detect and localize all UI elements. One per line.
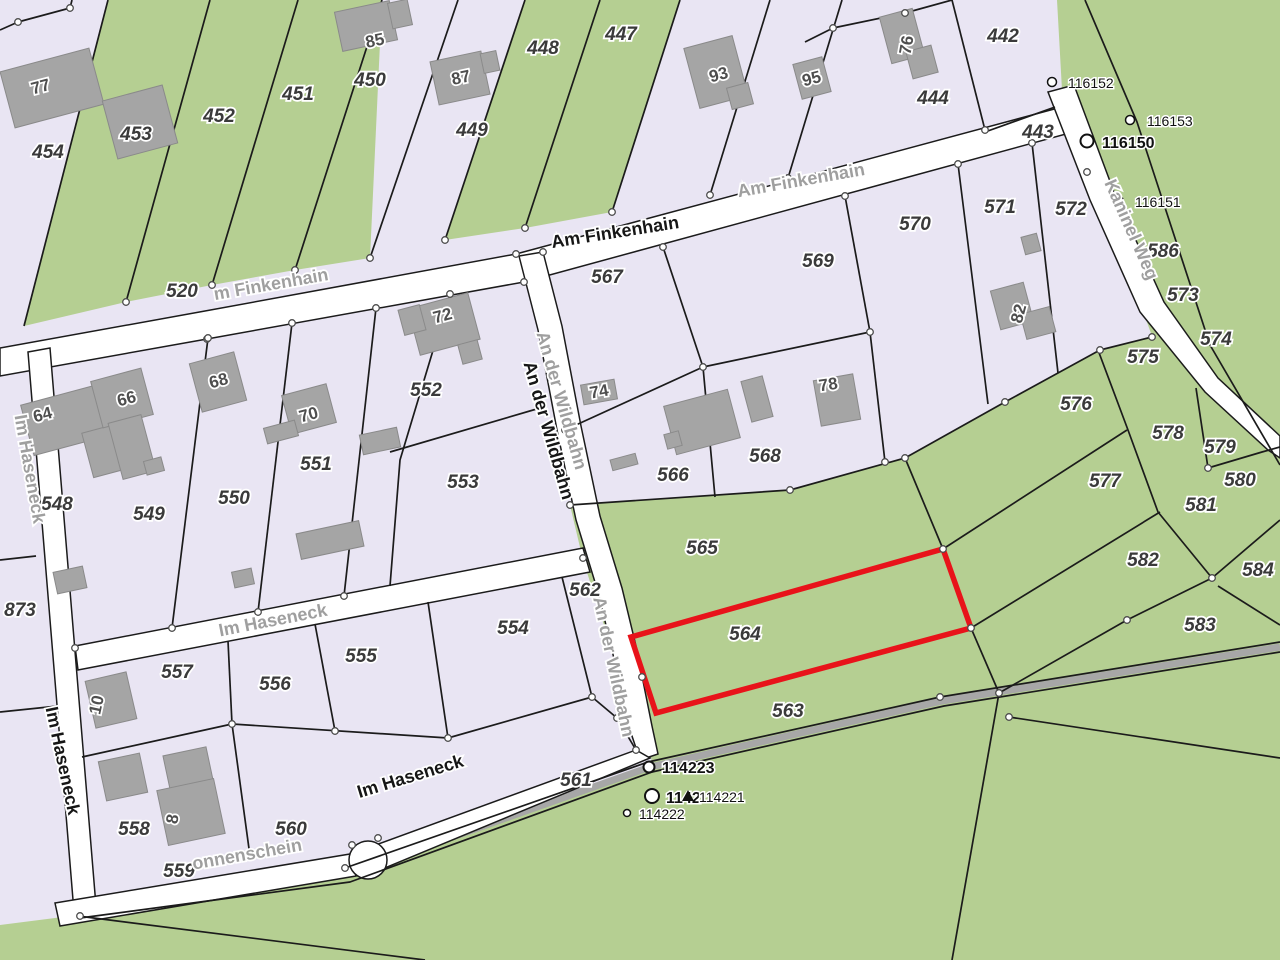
boundary-node	[332, 728, 339, 735]
parcel-number-447: 447	[604, 24, 638, 45]
boundary-node	[660, 244, 667, 251]
parcel-number-572: 572	[1055, 199, 1087, 220]
boundary-node	[589, 694, 596, 701]
survey-marker-label: 116152	[1068, 75, 1114, 91]
boundary-node	[940, 546, 947, 553]
boundary-node	[72, 645, 79, 652]
boundary-node	[633, 747, 640, 754]
building	[157, 779, 225, 846]
parcel-number-452: 452	[202, 106, 235, 127]
building	[458, 340, 482, 364]
boundary-node	[700, 364, 707, 371]
parcel-number-453: 453	[119, 124, 152, 145]
building	[480, 51, 500, 74]
parcel-number-569: 569	[802, 251, 834, 272]
parcel-number-557: 557	[161, 662, 194, 683]
survey-marker-label: 114223	[662, 760, 715, 777]
boundary-node	[77, 913, 84, 920]
parcel-number-581: 581	[1185, 495, 1217, 516]
survey-marker-label: 114221	[699, 789, 745, 805]
survey-marker-circle	[1081, 135, 1094, 148]
survey-marker-circle	[1126, 116, 1135, 125]
parcel-number-555: 555	[345, 646, 377, 667]
boundary-node	[123, 299, 130, 306]
parcel-number-552: 552	[410, 380, 442, 401]
parcel-number-551: 551	[300, 454, 332, 475]
parcel-number-558: 558	[118, 819, 150, 840]
boundary-node	[367, 255, 374, 262]
boundary-node	[567, 502, 574, 509]
parcel-number-448: 448	[526, 38, 559, 59]
boundary-node	[447, 291, 454, 298]
boundary-node	[882, 459, 889, 466]
boundary-node	[830, 25, 837, 32]
parcel-number-549: 549	[133, 504, 165, 525]
parcel-number-568: 568	[749, 446, 781, 467]
boundary-node	[67, 5, 74, 12]
survey-marker-label: 116153	[1147, 113, 1193, 129]
building-number-76: 76	[896, 34, 918, 56]
survey-marker-label: 116151	[1135, 194, 1181, 210]
parcel-number-451: 451	[281, 84, 314, 105]
boundary-node	[842, 193, 849, 200]
survey-marker-circle	[644, 762, 655, 773]
building-number-85: 85	[364, 29, 386, 52]
parcel-number-579: 579	[1204, 437, 1236, 458]
parcel-number-450: 450	[353, 70, 386, 91]
boundary-node	[580, 555, 587, 562]
parcel-number-520: 520	[166, 281, 198, 302]
building	[664, 431, 682, 449]
parcel-number-449: 449	[455, 120, 488, 141]
boundary-node	[1205, 465, 1212, 472]
parcel-number-443: 443	[1021, 122, 1054, 143]
parcel-number-550: 550	[218, 488, 250, 509]
parcel-number-575: 575	[1127, 347, 1159, 368]
boundary-node	[289, 320, 296, 327]
parcel-number-570: 570	[899, 214, 931, 235]
building-number-87: 87	[450, 66, 472, 89]
boundary-node	[445, 735, 452, 742]
boundary-node	[513, 251, 520, 258]
boundary-node	[968, 625, 975, 632]
building-number-78: 78	[818, 374, 839, 395]
building	[232, 568, 255, 588]
parcel-number-573: 573	[1167, 285, 1199, 306]
boundary-node	[639, 674, 646, 681]
boundary-node	[902, 10, 909, 17]
boundary-node	[169, 625, 176, 632]
parcel-number-580: 580	[1224, 470, 1256, 491]
survey-marker-label: 116150	[1102, 135, 1155, 152]
parcel-number-873: 873	[4, 600, 36, 621]
survey-marker-circle	[645, 789, 659, 803]
survey-marker-circle	[1048, 78, 1057, 87]
parcel-number-444: 444	[916, 88, 949, 109]
boundary-node	[205, 335, 212, 342]
parcel-number-554: 554	[497, 618, 529, 639]
parcel-number-559: 559	[163, 861, 195, 882]
parcel-number-556: 556	[259, 674, 291, 695]
boundary-node	[1002, 399, 1009, 406]
map-canvas[interactable]: 1161521161531161501161511142231142114221…	[0, 0, 1280, 960]
parcel-number-553: 553	[447, 472, 479, 493]
parcel-number-577: 577	[1089, 471, 1122, 492]
parcel-number-571: 571	[984, 197, 1016, 218]
parcel-number-565: 565	[686, 538, 718, 559]
boundary-node	[442, 237, 449, 244]
boundary-node	[1209, 575, 1216, 582]
parcel-number-566: 566	[657, 465, 689, 486]
boundary-node	[1097, 347, 1104, 354]
parcel-number-582: 582	[1127, 550, 1159, 571]
boundary-node	[1006, 714, 1013, 721]
boundary-node	[1084, 169, 1091, 176]
building-number-10: 10	[85, 694, 108, 716]
parcel-number-561: 561	[560, 770, 592, 791]
boundary-node	[522, 225, 529, 232]
parcel-number-583: 583	[1184, 615, 1216, 636]
parcel-number-442: 442	[986, 26, 1019, 47]
boundary-node	[373, 305, 380, 312]
cadastral-map[interactable]: 1161521161531161501161511142231142114221…	[0, 0, 1280, 960]
boundary-node	[609, 209, 616, 216]
boundary-node	[375, 835, 382, 842]
boundary-node	[15, 19, 22, 26]
parcel-number-584: 584	[1242, 560, 1274, 581]
boundary-node	[996, 690, 1003, 697]
building	[98, 753, 147, 801]
boundary-node	[902, 455, 909, 462]
boundary-node	[867, 329, 874, 336]
boundary-node	[1149, 334, 1156, 341]
boundary-node	[707, 192, 714, 199]
boundary-node	[1124, 617, 1131, 624]
survey-marker-circle	[624, 810, 631, 817]
boundary-node	[787, 487, 794, 494]
parcel-number-564: 564	[729, 624, 761, 645]
building-number-74: 74	[588, 380, 610, 402]
boundary-node	[937, 694, 944, 701]
boundary-node	[540, 249, 547, 256]
parcel-number-578: 578	[1152, 423, 1184, 444]
boundary-node	[982, 127, 989, 134]
survey-marker-label: 114222	[639, 806, 685, 822]
parcel-number-576: 576	[1060, 394, 1092, 415]
boundary-node	[229, 721, 236, 728]
boundary-node	[349, 842, 356, 849]
parcel-number-567: 567	[591, 267, 624, 288]
boundary-node	[341, 593, 348, 600]
parcel-number-574: 574	[1200, 329, 1232, 350]
parcel-number-563: 563	[772, 701, 804, 722]
boundary-node	[955, 161, 962, 168]
boundary-node	[342, 865, 349, 872]
parcel-number-454: 454	[31, 142, 64, 163]
boundary-node	[521, 279, 528, 286]
